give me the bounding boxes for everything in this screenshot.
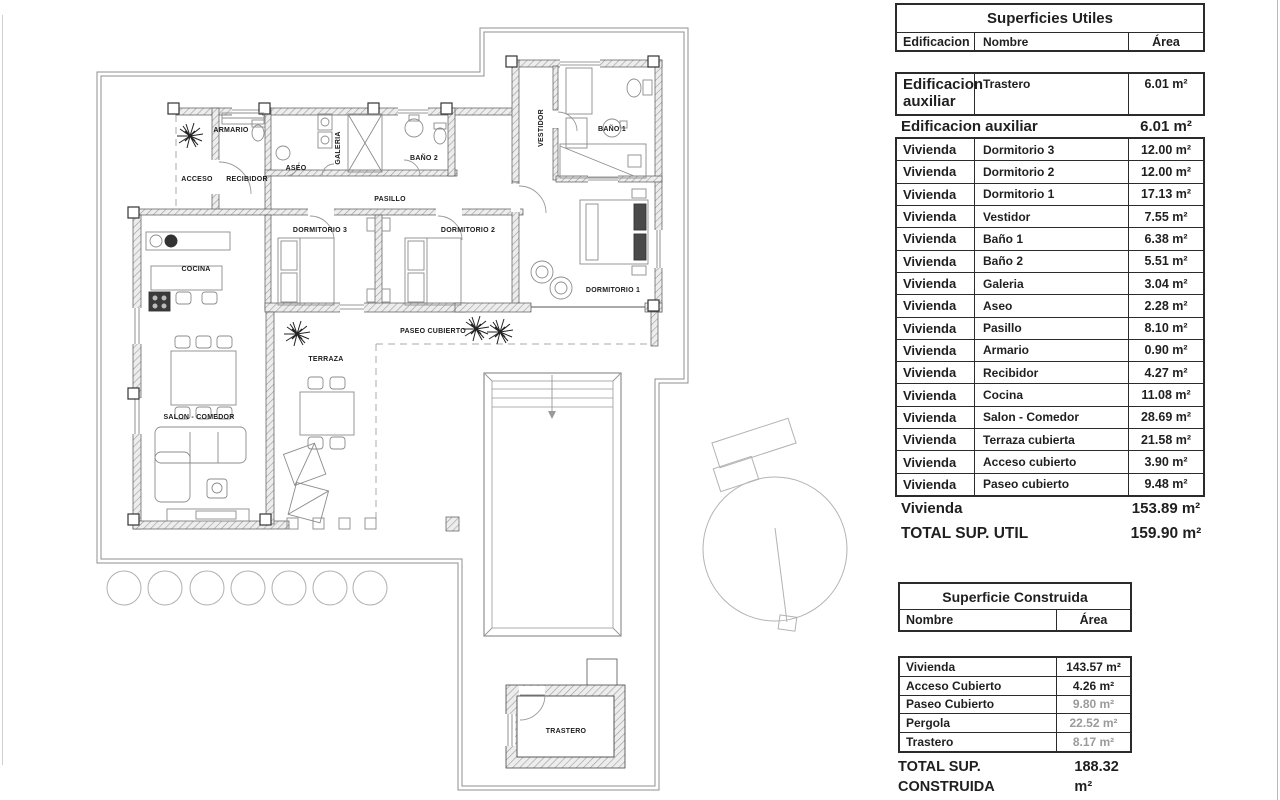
aux-area: 6.01 m²	[1129, 74, 1203, 114]
superficie-construida-columns: Nombre Área	[900, 610, 1130, 630]
table-cell: 9.80 m²	[1057, 696, 1130, 714]
table-cell: Dormitorio 1	[975, 184, 1129, 205]
table-cell: Vivienda	[897, 318, 975, 339]
table-row: ViviendaDormitorio 212.00 m²	[897, 161, 1203, 183]
table-cell: Salon - Comedor	[975, 407, 1129, 428]
table-cell: 2.28 m²	[1129, 295, 1203, 316]
table-row: Acceso Cubierto4.26 m²	[900, 677, 1130, 696]
total-sup-construida-value: 188.32 m²	[1074, 757, 1138, 797]
table-cell: 12.00 m²	[1129, 161, 1203, 182]
table-cell: 0.90 m²	[1129, 340, 1203, 361]
table-cell: Vivienda	[897, 474, 975, 495]
table-cell: Vivienda	[897, 407, 975, 428]
table-row: ViviendaSalon - Comedor28.69 m²	[897, 407, 1203, 429]
column-area: Área	[1129, 33, 1203, 50]
table-cell: Vivienda	[897, 384, 975, 405]
page: ARMARIO ACCESO RECIBIDOR ASEO GALERIA BA…	[0, 0, 1280, 800]
scan-edge-right	[1277, 0, 1278, 800]
table-cell: Vivienda	[897, 184, 975, 205]
room-label-bano1: BAÑO 1	[598, 124, 626, 133]
table-row: ViviendaGaleria3.04 m²	[897, 273, 1203, 295]
table-cell: 9.48 m²	[1129, 474, 1203, 495]
superficies-utiles-title: Superficies Utiles	[897, 5, 1203, 33]
table-cell: 8.10 m²	[1129, 318, 1203, 339]
table-cell: 11.08 m²	[1129, 384, 1203, 405]
pergola	[703, 418, 847, 631]
room-label-cocina: COCINA	[181, 266, 210, 273]
table-row: ViviendaBaño 16.38 m²	[897, 228, 1203, 250]
table-cell: 5.51 m²	[1129, 251, 1203, 272]
vivienda-total-value: 153.89 m²	[1129, 498, 1203, 519]
table-row: ViviendaDormitorio 117.13 m²	[897, 184, 1203, 206]
total-sup-construida-label: TOTAL SUP. CONSTRUIDA	[898, 757, 1074, 797]
table-row: ViviendaVestidor7.55 m²	[897, 206, 1203, 228]
table-row: Paseo Cubierto9.80 m²	[900, 696, 1130, 715]
table-cell: Trastero	[900, 733, 1057, 751]
table-cell: 3.90 m²	[1129, 451, 1203, 472]
aux-nombre: Trastero	[975, 74, 1129, 114]
table-cell: Vivienda	[897, 228, 975, 249]
table-cell: Galeria	[975, 273, 1129, 294]
table-cell: Baño 1	[975, 228, 1129, 249]
vivienda-total-label: Vivienda	[901, 498, 962, 519]
superficie-construida-header: Superficie Construida Nombre Área	[898, 582, 1132, 632]
table-cell: 12.00 m²	[1129, 139, 1203, 160]
table-cell: Vivienda	[897, 273, 975, 294]
room-label-galeria: GALERIA	[335, 131, 342, 164]
table-cell: 17.13 m²	[1129, 184, 1203, 205]
table-cell: 4.26 m²	[1057, 677, 1130, 695]
corner-posts	[128, 56, 659, 525]
room-label-bano2: BAÑO 2	[410, 153, 438, 162]
table-cell: Vestidor	[975, 206, 1129, 227]
table-row: Pergola22.52 m²	[900, 714, 1130, 733]
aux-edificacion: Edificacion auxiliar	[897, 74, 975, 114]
aux-total-value: 6.01 m²	[1129, 116, 1203, 137]
superficies-utiles-columns: Edificacion Nombre Área	[897, 33, 1203, 50]
trastero-building	[505, 659, 625, 768]
table-cell: Cocina	[975, 384, 1129, 405]
table-cell: 143.57 m²	[1057, 658, 1130, 676]
room-label-aseo: ASEO	[286, 165, 307, 172]
floor-plan: ARMARIO ACCESO RECIBIDOR ASEO GALERIA BA…	[0, 0, 890, 800]
table-cell: Aseo	[975, 295, 1129, 316]
room-label-dormitorio1: DORMITORIO 1	[586, 287, 640, 294]
room-label-pasillo: PASILLO	[374, 196, 406, 203]
table-cell: Acceso Cubierto	[900, 677, 1057, 695]
table-cell: Vivienda	[897, 451, 975, 472]
table-cell: Terraza cubierta	[975, 429, 1129, 450]
aux-row: Edificacion auxiliar Trastero 6.01 m²	[895, 72, 1205, 116]
table-row: ViviendaBaño 25.51 m²	[897, 251, 1203, 273]
table-cell: Paseo Cubierto	[900, 696, 1057, 714]
table-row: Vivienda143.57 m²	[900, 658, 1130, 677]
table-row: Trastero8.17 m²	[900, 733, 1130, 751]
table-cell: Pergola	[900, 714, 1057, 732]
table-row: ViviendaPaseo cubierto9.48 m²	[897, 474, 1203, 495]
table-cell: Baño 2	[975, 251, 1129, 272]
table-cell: 6.38 m²	[1129, 228, 1203, 249]
table-cell: Vivienda	[900, 658, 1057, 676]
room-label-terraza: TERRAZA	[308, 356, 343, 363]
table-cell: Vivienda	[897, 206, 975, 227]
table-cell: Vivienda	[897, 295, 975, 316]
table-cell: Vivienda	[897, 161, 975, 182]
table-cell: Vivienda	[897, 340, 975, 361]
table-cell: 22.52 m²	[1057, 714, 1130, 732]
table-cell: Dormitorio 2	[975, 161, 1129, 182]
room-label-recibidor: RECIBIDOR	[226, 176, 268, 183]
table-row: ViviendaAcceso cubierto3.90 m²	[897, 451, 1203, 473]
total-sup-util-value: 159.90 m²	[1129, 522, 1203, 546]
column-edificacion: Edificacion	[897, 33, 975, 50]
room-label-dormitorio2: DORMITORIO 2	[441, 227, 495, 234]
vivienda-rows-table: ViviendaDormitorio 312.00 m²ViviendaDorm…	[895, 137, 1205, 497]
tree-row	[107, 571, 387, 605]
room-label-paseo-cubierto: PASEO CUBIERTO	[400, 328, 466, 335]
aux-total-row: Edificacion auxiliar 6.01 m²	[895, 116, 1205, 137]
table-row: ViviendaPasillo8.10 m²	[897, 318, 1203, 340]
table-cell: 7.55 m²	[1129, 206, 1203, 227]
table-row: ViviendaRecibidor4.27 m²	[897, 362, 1203, 384]
table-cell: 21.58 m²	[1129, 429, 1203, 450]
table-row: ViviendaTerraza cubierta21.58 m²	[897, 429, 1203, 451]
table-cell: 28.69 m²	[1129, 407, 1203, 428]
table-cell: 8.17 m²	[1057, 733, 1130, 751]
aux-total-label: Edificacion auxiliar	[901, 116, 1038, 137]
column-area: Área	[1057, 610, 1130, 630]
table-row: ViviendaDormitorio 312.00 m²	[897, 139, 1203, 161]
table-cell: Vivienda	[897, 362, 975, 383]
furniture	[146, 68, 652, 529]
total-sup-util-row: TOTAL SUP. UTIL 159.90 m²	[895, 522, 1205, 546]
table-cell: 3.04 m²	[1129, 273, 1203, 294]
table-cell: Vivienda	[897, 139, 975, 160]
room-label-acceso: ACCESO	[181, 176, 213, 183]
table-cell: Vivienda	[897, 429, 975, 450]
table-cell: Vivienda	[897, 251, 975, 272]
column-nombre: Nombre	[900, 610, 1057, 630]
room-label-dormitorio3: DORMITORIO 3	[293, 227, 347, 234]
pool	[484, 373, 621, 636]
table-cell: Paseo cubierto	[975, 474, 1129, 495]
table-cell: Dormitorio 3	[975, 139, 1129, 160]
table-row: ViviendaArmario0.90 m²	[897, 340, 1203, 362]
table-cell: Recibidor	[975, 362, 1129, 383]
room-label-trastero: TRASTERO	[546, 728, 587, 735]
vivienda-total-row: Vivienda 153.89 m²	[895, 498, 1205, 519]
room-label-salon-comedor: SALON - COMEDOR	[163, 414, 234, 421]
total-sup-construida-row: TOTAL SUP. CONSTRUIDA 188.32 m²	[898, 757, 1138, 797]
table-cell: Acceso cubierto	[975, 451, 1129, 472]
table-cell: Armario	[975, 340, 1129, 361]
table-cell: 4.27 m²	[1129, 362, 1203, 383]
column-nombre: Nombre	[975, 33, 1129, 50]
room-label-vestidor: VESTIDOR	[538, 109, 545, 147]
table-row: ViviendaCocina11.08 m²	[897, 384, 1203, 406]
superficies-utiles-header: Superficies Utiles Edificacion Nombre Ár…	[895, 3, 1205, 52]
table-row: ViviendaAseo2.28 m²	[897, 295, 1203, 317]
table-cell: Pasillo	[975, 318, 1129, 339]
construida-rows-table: Vivienda143.57 m²Acceso Cubierto4.26 m²P…	[898, 656, 1132, 753]
total-sup-util-label: TOTAL SUP. UTIL	[901, 522, 1028, 546]
room-label-armario: ARMARIO	[213, 127, 248, 134]
superficie-construida-title: Superficie Construida	[900, 584, 1130, 610]
